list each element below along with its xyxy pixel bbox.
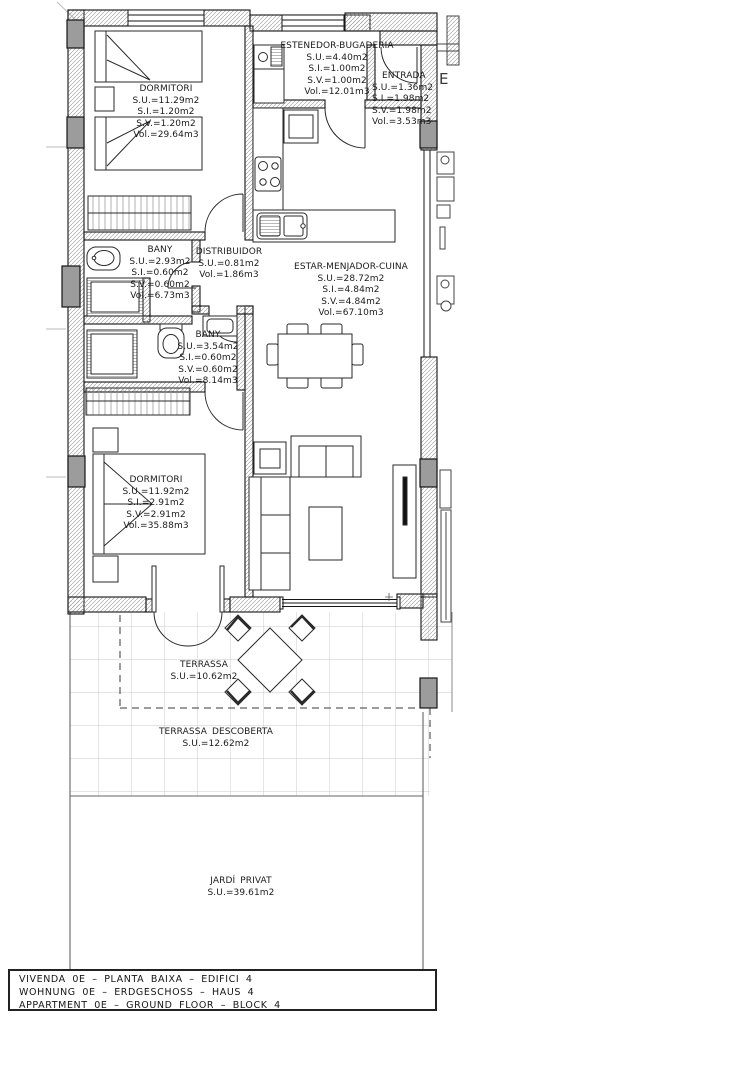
room-stat-line: Vol.=8.14m3 bbox=[177, 376, 238, 388]
room-label-terrassa-descoberta: TERRASSA DESCOBERTA S.U.=12.62m2 bbox=[159, 727, 273, 750]
room-name: ENTRADA bbox=[372, 71, 433, 83]
room-label-dormitori-1: DORMITORI S.U.=11.29m2 S.I.=1.20m2 S.V.=… bbox=[132, 84, 199, 142]
room-name: TERRASSA bbox=[170, 660, 237, 672]
room-stat-line: S.U.=11.92m2 bbox=[122, 487, 189, 499]
room-name: DORMITORI bbox=[132, 84, 199, 96]
room-name: BANY bbox=[177, 330, 238, 342]
room-stat-line: S.U.=2.93m2 bbox=[129, 257, 190, 269]
room-label-bany-2: BANY S.U.=3.54m2 S.I.=0.60m2 S.V.=0.60m2… bbox=[177, 330, 238, 388]
title-line-catalan: VIVENDA 0E – PLANTA BAIXA – EDIFICI 4 bbox=[19, 973, 435, 986]
room-label-distribuidor: DISTRIBUIDOR S.U.=0.81m2 Vol.=1.86m3 bbox=[196, 247, 263, 282]
room-stat-line: S.U.=11.29m2 bbox=[132, 96, 199, 108]
room-stat-line: S.I.=4.84m2 bbox=[294, 285, 408, 297]
room-stat-line: Vol.=29.64m3 bbox=[132, 130, 199, 142]
floor-plan-drawing bbox=[0, 0, 752, 1080]
room-label-jardi-privat: JARDÍ PRIVAT S.U.=39.61m2 bbox=[207, 876, 274, 899]
room-name: JARDÍ PRIVAT bbox=[207, 876, 274, 888]
room-stat-line: Vol.=67.10m3 bbox=[294, 308, 408, 320]
room-name: ESTENEDOR-BUGADERIA bbox=[280, 41, 393, 53]
room-stat-line: S.U.=10.62m2 bbox=[170, 672, 237, 684]
room-stat-line: S.U.=3.54m2 bbox=[177, 342, 238, 354]
room-stat-line: S.I.=0.60m2 bbox=[129, 268, 190, 280]
room-name: BANY bbox=[129, 245, 190, 257]
room-stat-line: S.V.=0.60m2 bbox=[177, 365, 238, 377]
room-label-estar-menjador-cuina: ESTAR-MENJADOR-CUINA S.U.=28.72m2 S.I.=4… bbox=[294, 262, 408, 320]
room-stat-line: Vol.=6.73m3 bbox=[129, 291, 190, 303]
room-stat-line: Vol.=3.53m3 bbox=[372, 117, 433, 129]
room-stat-line: S.I.=1.98m2 bbox=[372, 94, 433, 106]
room-label-entrada: ENTRADA S.U.=1.36m2 S.I.=1.98m2 S.V.=1.9… bbox=[372, 71, 433, 129]
room-stat-line: S.V.=2.91m2 bbox=[122, 510, 189, 522]
room-stat-line: S.U.=39.61m2 bbox=[207, 888, 274, 900]
room-label-dormitori-2: DORMITORI S.U.=11.92m2 S.I.=2.91m2 S.V.=… bbox=[122, 475, 189, 533]
room-stat-line: Vol.=1.86m3 bbox=[196, 270, 263, 282]
title-block: VIVENDA 0E – PLANTA BAIXA – EDIFICI 4 WO… bbox=[8, 969, 437, 1011]
room-stat-line: S.V.=4.84m2 bbox=[294, 297, 408, 309]
room-stat-line: S.V.=1.98m2 bbox=[372, 106, 433, 118]
room-stat-line: S.U.=4.40m2 bbox=[280, 53, 393, 65]
room-stat-line: S.U.=1.36m2 bbox=[372, 83, 433, 95]
room-name: TERRASSA DESCOBERTA bbox=[159, 727, 273, 739]
room-stat-line: S.V.=0.60m2 bbox=[129, 280, 190, 292]
room-stat-line: S.U.=28.72m2 bbox=[294, 274, 408, 286]
room-stat-line: S.V.=1.20m2 bbox=[132, 119, 199, 131]
title-line-english: APPARTMENT 0E – GROUND FLOOR – BLOCK 4 bbox=[19, 999, 435, 1012]
room-stat-line: S.I.=1.20m2 bbox=[132, 107, 199, 119]
room-stat-line: Vol.=35.88m3 bbox=[122, 521, 189, 533]
adjacent-unit-fragments bbox=[437, 16, 459, 622]
room-stat-line: S.I.=0.60m2 bbox=[177, 353, 238, 365]
room-name: DORMITORI bbox=[122, 475, 189, 487]
room-label-bany-1: BANY S.U.=2.93m2 S.I.=0.60m2 S.V.=0.60m2… bbox=[129, 245, 190, 303]
room-stat-line: S.U.=12.62m2 bbox=[159, 739, 273, 751]
room-stat-line: S.I.=2.91m2 bbox=[122, 498, 189, 510]
floor-plan-canvas: DORMITORI S.U.=11.29m2 S.I.=1.20m2 S.V.=… bbox=[0, 0, 752, 1080]
room-label-terrassa: TERRASSA S.U.=10.62m2 bbox=[170, 660, 237, 683]
room-stat-line: S.U.=0.81m2 bbox=[196, 259, 263, 271]
title-line-german: WOHNUNG 0E – ERDGESCHOSS – HAUS 4 bbox=[19, 986, 435, 999]
party-wall bbox=[424, 150, 430, 357]
room-name: DISTRIBUIDOR bbox=[196, 247, 263, 259]
room-name: ESTAR-MENJADOR-CUINA bbox=[294, 262, 408, 274]
adjacent-unit-label: E bbox=[439, 70, 448, 88]
